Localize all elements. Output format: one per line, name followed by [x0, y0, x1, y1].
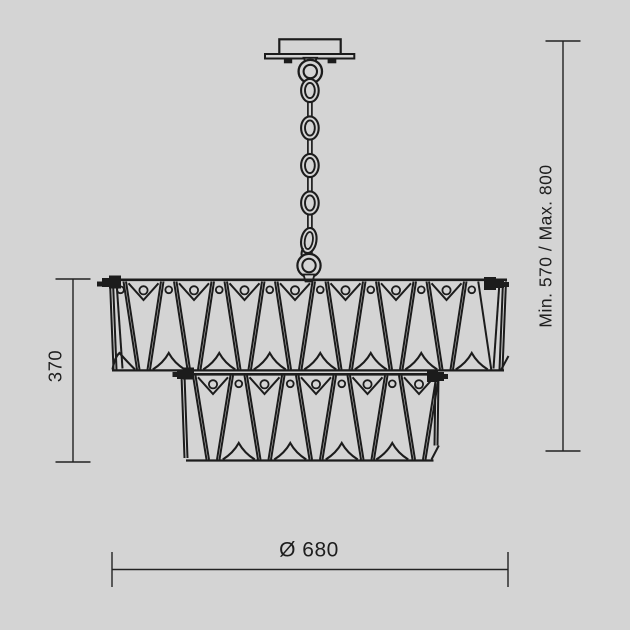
diameter-label: Ø 680 — [279, 539, 339, 562]
chandelier-dimension-drawing: 370 Min. 570 / Max. 800 Ø 680 — [0, 0, 630, 630]
suspension-height-label: Min. 570 / Max. 800 — [536, 164, 556, 327]
body-height-label: 370 — [45, 350, 66, 382]
drawing-canvas: 370 Min. 570 / Max. 800 Ø 680 — [0, 0, 630, 630]
